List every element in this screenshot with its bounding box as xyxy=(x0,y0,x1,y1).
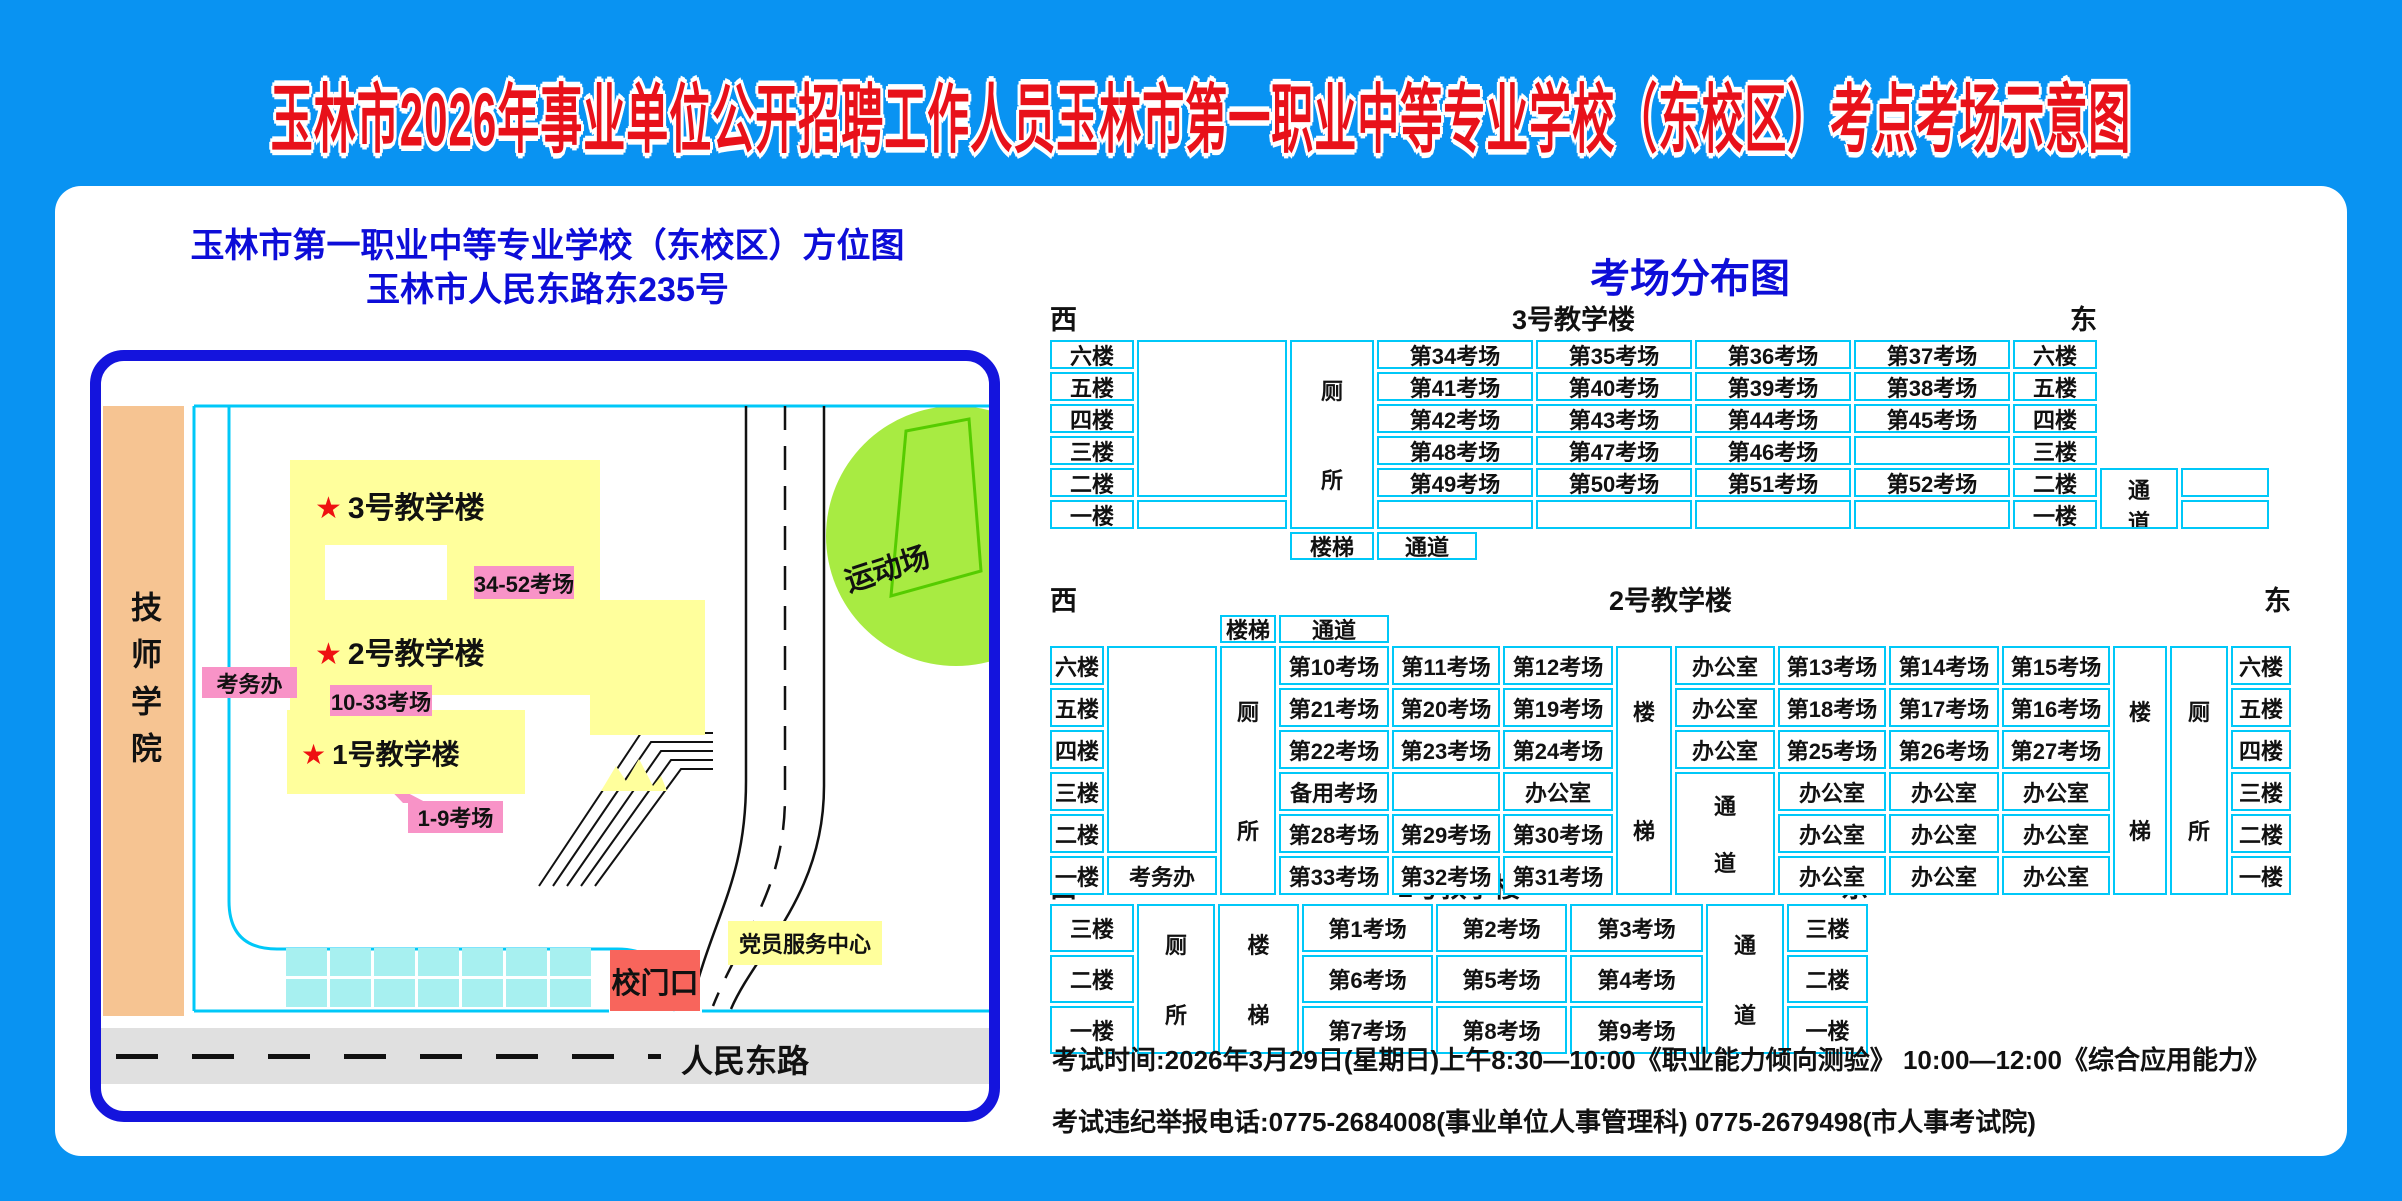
table-cell: 第4考场 xyxy=(1570,955,1703,1003)
parking-cell xyxy=(286,948,327,976)
table-cell: 第44考场 xyxy=(1695,404,1851,433)
table-cell: 第6考场 xyxy=(1302,955,1433,1003)
table-cell: 第22考场 xyxy=(1279,730,1389,769)
table-cell: 办公室 xyxy=(1889,856,1999,895)
table-cell: 办公室 xyxy=(1889,772,1999,811)
table-cell: 第50考场 xyxy=(1536,468,1692,497)
campus-map: 技师学院 ★3号教学楼 ★2号教学楼 ★1号教学楼 34-52考场 考务办 10… xyxy=(90,350,1000,1122)
west-label: 西 xyxy=(1050,298,1077,337)
table-cell: 二楼 xyxy=(1050,468,1134,497)
table-cell: 二楼 xyxy=(1050,955,1134,1003)
table-cell xyxy=(1695,500,1851,529)
callout-kaowuban: 考务办 xyxy=(202,667,297,698)
table-cell: 第16考场 xyxy=(2002,688,2110,727)
parking-cell xyxy=(418,979,459,1007)
table-cell: 三楼 xyxy=(1050,904,1134,952)
table-cell xyxy=(1854,500,2010,529)
table-cell: 五楼 xyxy=(1050,688,1104,727)
table-cell: 办公室 xyxy=(1675,646,1775,685)
table-cell: 办公室 xyxy=(1675,730,1775,769)
parking-cell xyxy=(330,979,371,1007)
road-dash-line xyxy=(116,1054,661,1059)
table-cell: 厕所 xyxy=(1220,646,1276,895)
table-cell: 二楼 xyxy=(1050,814,1104,853)
table-cell: 第36考场 xyxy=(1695,340,1851,369)
table-cell: 第20考场 xyxy=(1392,688,1500,727)
table-cell: 通道 xyxy=(1675,772,1775,895)
parking-grid xyxy=(286,948,591,1007)
map-title-line2: 玉林市人民东路东235号 xyxy=(90,268,1005,312)
sports-field-shape xyxy=(826,406,989,666)
star-icon: ★ xyxy=(301,739,326,770)
star-icon: ★ xyxy=(315,638,342,671)
parking-cell xyxy=(506,979,547,1007)
table-cell: 楼梯 xyxy=(1290,532,1374,560)
table-cell: 一楼 xyxy=(1050,500,1134,529)
building3-label: ★3号教学楼 xyxy=(315,483,485,527)
table-cell: 六楼 xyxy=(1050,340,1134,369)
table-cell: 楼梯 xyxy=(1218,904,1299,1054)
table-cell: 第5考场 xyxy=(1436,955,1567,1003)
table-cell: 五楼 xyxy=(1050,372,1134,401)
table-cell: 第32考场 xyxy=(1392,856,1500,895)
table-cell: 第25考场 xyxy=(1778,730,1886,769)
room-table-building2: 楼梯通道六楼五楼四楼三楼二楼一楼考务办厕所第10考场第11考场第12考场第21考… xyxy=(1050,615,2291,895)
parking-cell xyxy=(418,948,459,976)
page-title: 玉林市2026年事业单位公开招聘工作人员玉林市第一职业中等专业学校（东校区）考点… xyxy=(0,60,2402,121)
table-cell: 三楼 xyxy=(2013,436,2097,465)
parking-cell xyxy=(286,979,327,1007)
table-cell xyxy=(1536,500,1692,529)
table-cell xyxy=(1377,500,1533,529)
table-cell: 楼梯 xyxy=(2113,646,2167,895)
table-cell: 备用考场 xyxy=(1279,772,1389,811)
room-table-building1: 三楼二楼一楼厕所楼梯第1考场第2考场第3考场第6考场第5考场第4考场第7考场第8… xyxy=(1050,904,1868,1054)
table-cell: 三楼 xyxy=(1050,436,1134,465)
table-cell: 第14考场 xyxy=(1889,646,1999,685)
table-cell: 三楼 xyxy=(1050,772,1104,811)
table-cell: 二楼 xyxy=(1787,955,1868,1003)
building2-label: ★2号教学楼 xyxy=(315,629,485,673)
table-cell: 第43考场 xyxy=(1536,404,1692,433)
table-cell: 一楼 xyxy=(2013,500,2097,529)
table-cell: 五楼 xyxy=(2013,372,2097,401)
table-cell: 第35考场 xyxy=(1536,340,1692,369)
table-cell: 第3考场 xyxy=(1570,904,1703,952)
table-cell: 六楼 xyxy=(2013,340,2097,369)
parking-cell xyxy=(374,948,415,976)
table-cell: 第26考场 xyxy=(1889,730,1999,769)
star-icon: ★ xyxy=(315,492,342,525)
table-cell: 第30考场 xyxy=(1503,814,1613,853)
table-cell: 办公室 xyxy=(1778,814,1886,853)
table-cell: 考务办 xyxy=(1107,856,1217,895)
table-cell: 办公室 xyxy=(2002,856,2110,895)
table-cell: 三楼 xyxy=(1787,904,1868,952)
renmin-east-road: 人民东路 xyxy=(101,1028,989,1084)
table-cell xyxy=(1392,772,1500,811)
table-cell: 第34考场 xyxy=(1377,340,1533,369)
party-service-center: 党员服务中心 xyxy=(728,921,882,965)
parking-cell xyxy=(462,979,503,1007)
exam-venue-poster: 玉林市2026年事业单位公开招聘工作人员玉林市第一职业中等专业学校（东校区）考点… xyxy=(0,0,2402,1201)
table-cell: 第17考场 xyxy=(1889,688,1999,727)
distribution-title: 考场分布图 xyxy=(1050,246,2330,304)
table-cell: 第48考场 xyxy=(1377,436,1533,465)
table-cell: 第11考场 xyxy=(1392,646,1500,685)
table-cell: 第46考场 xyxy=(1695,436,1851,465)
parking-cell xyxy=(374,979,415,1007)
table-cell xyxy=(1107,646,1217,853)
table-cell: 楼梯 xyxy=(1616,646,1672,895)
table-cell: 第13考场 xyxy=(1778,646,1886,685)
table-cell: 厕所 xyxy=(1290,340,1374,529)
section-building-label: 2号教学楼 xyxy=(1609,579,1732,618)
table-cell: 第28考场 xyxy=(1279,814,1389,853)
callout-rooms-10-33: 10-33考场 xyxy=(330,685,432,716)
table-cell: 第29考场 xyxy=(1392,814,1500,853)
table-cell: 第51考场 xyxy=(1695,468,1851,497)
table-cell: 四楼 xyxy=(1050,730,1104,769)
building1-label: ★1号教学楼 xyxy=(301,733,460,773)
room-table-building3: 六楼五楼四楼三楼二楼一楼厕所第34考场第35考场第36考场第37考场第41考场第… xyxy=(1050,340,2269,560)
table-cell: 第12考场 xyxy=(1503,646,1613,685)
table-cell xyxy=(1137,500,1287,529)
table-cell: 通道 xyxy=(1706,904,1784,1054)
section-header-building3: 西 3号教学楼 东 xyxy=(1050,298,2097,337)
table-cell: 第45考场 xyxy=(1854,404,2010,433)
table-cell: 第2考场 xyxy=(1436,904,1567,952)
building3-wing-left xyxy=(290,545,325,600)
table-cell: 第37考场 xyxy=(1854,340,2010,369)
table-cell: 二楼 xyxy=(2013,468,2097,497)
table-cell: 第42考场 xyxy=(1377,404,1533,433)
east-label: 东 xyxy=(2070,298,2097,337)
table-cell: 三楼 xyxy=(2231,772,2291,811)
table-cell: 办公室 xyxy=(2002,814,2110,853)
parking-cell xyxy=(550,948,591,976)
section-header-building2: 西 2号教学楼 东 xyxy=(1050,579,2291,618)
road-centerline xyxy=(713,406,785,1006)
callout-rooms-34-52: 34-52考场 xyxy=(474,566,574,599)
building2-wing-right xyxy=(590,695,705,735)
table-cell: 办公室 xyxy=(1675,688,1775,727)
decor-yellow-shape xyxy=(601,759,667,791)
table-cell: 办公室 xyxy=(2002,772,2110,811)
table-cell: 通道 xyxy=(1279,615,1389,643)
east-label: 东 xyxy=(2264,579,2291,618)
table-cell: 办公室 xyxy=(1778,856,1886,895)
callout-rooms-1-9: 1-9考场 xyxy=(408,801,503,833)
table-cell: 一楼 xyxy=(2231,856,2291,895)
table-cell: 第19考场 xyxy=(1503,688,1613,727)
table-cell: 四楼 xyxy=(2231,730,2291,769)
road-name-label: 人民东路 xyxy=(681,1036,809,1082)
parking-cell xyxy=(330,948,371,976)
table-cell: 五楼 xyxy=(2231,688,2291,727)
table-cell: 办公室 xyxy=(1503,772,1613,811)
technician-college-block: 技师学院 xyxy=(103,406,184,1016)
parking-cell xyxy=(550,979,591,1007)
table-cell: 办公室 xyxy=(1778,772,1886,811)
table-cell: 第38考场 xyxy=(1854,372,2010,401)
table-cell: 一楼 xyxy=(1050,856,1104,895)
hatch-lines xyxy=(539,733,713,886)
table-cell xyxy=(2181,468,2269,497)
table-cell: 第33考场 xyxy=(1279,856,1389,895)
table-cell: 第27考场 xyxy=(2002,730,2110,769)
table-cell: 第18考场 xyxy=(1778,688,1886,727)
section-building-label: 3号教学楼 xyxy=(1512,298,1635,337)
school-gate-label: 校门口 xyxy=(610,950,700,1011)
table-cell: 四楼 xyxy=(2013,404,2097,433)
exam-time-note: 考试时间:2026年3月29日(星期日)上午8:30—10:00《职业能力倾向测… xyxy=(1052,1040,2342,1077)
report-phone-note: 考试违纪举报电话:0775-2684008(事业单位人事管理科) 0775-26… xyxy=(1052,1102,2342,1139)
table-cell: 第47考场 xyxy=(1536,436,1692,465)
table-cell xyxy=(2181,500,2269,529)
table-cell: 第41考场 xyxy=(1377,372,1533,401)
table-cell: 第10考场 xyxy=(1279,646,1389,685)
table-cell: 第52考场 xyxy=(1854,468,2010,497)
table-cell: 二楼 xyxy=(2231,814,2291,853)
table-cell xyxy=(1137,340,1287,497)
table-cell: 第21考场 xyxy=(1279,688,1389,727)
table-cell: 通道 xyxy=(2100,468,2178,529)
table-cell: 第39考场 xyxy=(1695,372,1851,401)
table-cell: 第15考场 xyxy=(2002,646,2110,685)
table-cell: 办公室 xyxy=(1889,814,1999,853)
parking-cell xyxy=(462,948,503,976)
table-cell: 通道 xyxy=(1377,532,1477,560)
table-cell: 第49考场 xyxy=(1377,468,1533,497)
table-cell: 厕所 xyxy=(1137,904,1215,1054)
table-cell: 六楼 xyxy=(1050,646,1104,685)
table-cell: 第31考场 xyxy=(1503,856,1613,895)
table-cell: 第23考场 xyxy=(1392,730,1500,769)
table-cell: 第40考场 xyxy=(1536,372,1692,401)
table-cell: 第24考场 xyxy=(1503,730,1613,769)
table-cell: 厕所 xyxy=(2170,646,2228,895)
table-cell: 四楼 xyxy=(1050,404,1134,433)
table-cell: 第1考场 xyxy=(1302,904,1433,952)
table-cell: 楼梯 xyxy=(1220,615,1276,643)
west-label: 西 xyxy=(1050,579,1077,618)
map-title-line1: 玉林市第一职业中等专业学校（东校区）方位图 xyxy=(90,224,1005,268)
page-title-text: 玉林市2026年事业单位公开招聘工作人员玉林市第一职业中等专业学校（东校区）考点… xyxy=(271,60,2131,169)
parking-cell xyxy=(506,948,547,976)
table-cell xyxy=(1854,436,2010,465)
table-cell: 六楼 xyxy=(2231,646,2291,685)
map-title: 玉林市第一职业中等专业学校（东校区）方位图 玉林市人民东路东235号 xyxy=(90,224,1005,312)
